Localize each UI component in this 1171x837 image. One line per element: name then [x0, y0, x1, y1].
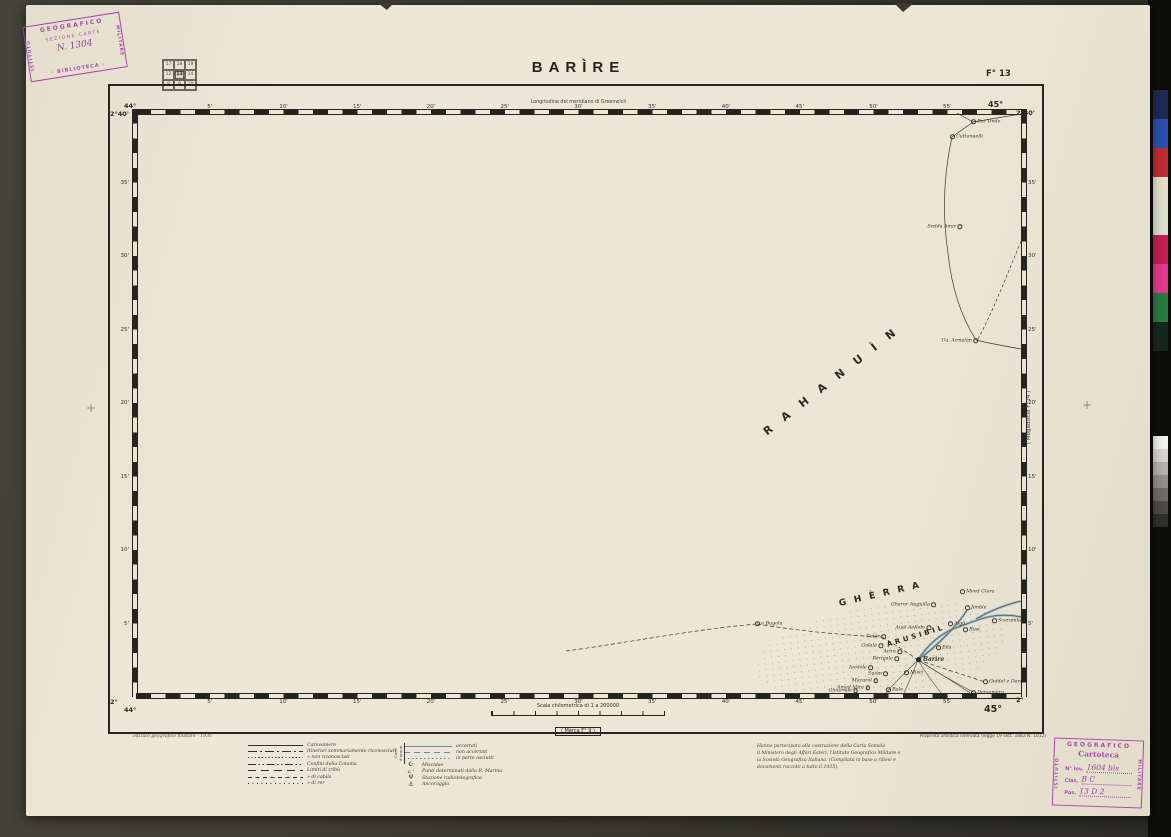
- stamp-field-label: N° inv.: [1065, 766, 1084, 773]
- stamp-text: · BIBLIOTECA ·: [31, 58, 127, 79]
- credits-line: Hanno partecipato alla costruzione della…: [757, 743, 977, 750]
- top-tick-labels: 5'10'15'20'25'30'35'40'45'50'55': [136, 104, 1021, 111]
- water-dotted-line-sample: [404, 758, 452, 759]
- place-marker: [883, 671, 888, 676]
- credits-block: Hanno partecipato alla costruzione della…: [757, 743, 977, 771]
- calibration-gray-patch: [1153, 475, 1168, 488]
- map-place: Dersamèra: [971, 690, 1004, 693]
- legend-label: non accertati: [456, 750, 487, 755]
- edition-note: Istituto geografico militare - 1936: [133, 734, 212, 739]
- place-marker: [973, 338, 978, 343]
- map-place: Cuttanaelli: [950, 134, 983, 139]
- place-marker: [971, 690, 976, 693]
- legend-row: » di rer: [248, 780, 396, 786]
- map-place: Ua. Armalàn: [941, 338, 978, 343]
- lat-tick-label: 25': [104, 327, 129, 333]
- lon-tick-label: 55': [943, 104, 952, 110]
- water-group-label: Corsi d'acqua: [393, 743, 405, 764]
- place-label: Suiàn: [868, 671, 882, 676]
- stamp-handwritten-value: 1604 bis: [1086, 764, 1132, 775]
- index-grid-cell: 12: [163, 70, 174, 80]
- color-calibration-strip: [1153, 90, 1168, 351]
- place-marker: [971, 119, 976, 124]
- place-marker: [992, 618, 997, 623]
- cartoteca-stamp: GEOGRAFICO ISTITUTO MILITARE Cartoteca N…: [1052, 737, 1144, 808]
- place-label: Bale: [892, 687, 903, 692]
- map-place: Sedda Amìr: [927, 224, 962, 229]
- lat-tick-label: 35': [1026, 180, 1037, 186]
- calibration-color-patch: [1153, 148, 1168, 177]
- cartoteca-row: Clas.B C: [1065, 772, 1132, 786]
- adjacent-sheet-label-bottom: ( Mèrca F° 9 ): [555, 727, 601, 736]
- lon-tick-label: 5': [207, 699, 212, 705]
- place-label: Dersamèra: [977, 690, 1004, 693]
- legend-label: Miscidas: [422, 763, 443, 768]
- map-place: Eila: [936, 645, 952, 650]
- water-dashed-line-sample: [404, 752, 452, 753]
- legend-label: Carovaniere: [307, 743, 336, 748]
- index-grid-cell: 13: [174, 70, 185, 80]
- legend-label: Stazione radiotelegrafica: [422, 776, 482, 781]
- credits-line: documenti raccolti a tutto il 1935).: [757, 764, 977, 771]
- calibration-gray-patch: [1153, 436, 1168, 449]
- corner-longitude-label: 44°: [124, 102, 136, 110]
- sheet-number: F° 13: [986, 69, 1011, 79]
- place-label: Rerìgale: [872, 656, 893, 661]
- map-place: Bale: [886, 687, 903, 692]
- lon-tick-label: 25': [500, 104, 509, 110]
- credits-line: la Società Geografica Italiana. (Compila…: [757, 757, 977, 764]
- cartoteca-row: N° inv.1604 bis: [1065, 760, 1132, 774]
- map-place: Catâr: [866, 634, 886, 639]
- legend-label: Limiti di tribù: [307, 768, 340, 773]
- uncertain-track: [978, 241, 1021, 339]
- legend-label: Confini della Colonia: [307, 762, 357, 767]
- solid-line-sample: [248, 745, 303, 746]
- map-place: Ghiurrale: [829, 688, 858, 693]
- map-place: Suiàn: [868, 671, 888, 676]
- index-grid-cell: 19: [185, 60, 196, 70]
- map-place: Giddel e Daradorle: [983, 679, 1021, 684]
- place-label: Gherer Auguilla: [891, 602, 930, 607]
- place-marker: [873, 678, 878, 683]
- map-place: Iacdòle: [849, 665, 873, 670]
- lat-tick-label: 25': [1026, 327, 1037, 333]
- map-place: Macaròl: [852, 678, 878, 683]
- calibration-color-patch: [1153, 119, 1168, 148]
- legend-water-group: Corsi d'acqua accertatinon accertatiin p…: [404, 743, 502, 788]
- corner-longitude-label: 45°: [988, 100, 1003, 109]
- place-marker: [983, 679, 988, 684]
- place-marker: [950, 134, 955, 139]
- place-label: Miscì: [910, 670, 923, 675]
- lon-tick-label: 50': [869, 699, 878, 705]
- dotted-line-sample: [248, 757, 303, 758]
- place-label: Macaròl: [852, 678, 872, 683]
- calibration-gray-patch: [1153, 501, 1168, 514]
- place-marker: [948, 621, 953, 626]
- lon-tick-label: 45': [795, 104, 804, 110]
- legend-label: accertati: [456, 744, 477, 749]
- registration-cross: +: [1082, 398, 1092, 412]
- place-marker: [886, 687, 891, 692]
- map-place: Bur Onde: [971, 119, 1000, 124]
- lon-tick-label: 15': [353, 104, 362, 110]
- place-label: Bur Onde: [977, 119, 1000, 124]
- map-place: Rùsi: [963, 627, 980, 632]
- corner-longitude-label: 45°: [984, 704, 1002, 715]
- dashdot-line-sample: [248, 751, 303, 752]
- place-marker: [916, 657, 921, 662]
- lon-tick-label: 35': [648, 104, 657, 110]
- place-label: Aigò: [954, 621, 965, 626]
- calibration-gray-patch: [1153, 462, 1168, 475]
- lat-tick-label: 10': [104, 547, 129, 553]
- paper-tear: [894, 3, 914, 12]
- map-place: Barìre: [916, 656, 944, 663]
- place-marker: [878, 643, 883, 648]
- scale-bar: [491, 711, 665, 716]
- map-place: Galalà: [861, 643, 883, 648]
- stamp-field-label: Pos.: [1064, 790, 1076, 796]
- index-grid-row: 171819: [163, 60, 196, 70]
- legend-routes: CarovaniereItinerari sommariamente ricon…: [248, 742, 396, 787]
- map-title: BARÌRE: [386, 59, 771, 76]
- caravan-track: [945, 113, 1021, 349]
- map-place: Arirà: [883, 649, 902, 654]
- stamp-field-label: Clas.: [1065, 778, 1079, 784]
- map-place: Jimble: [965, 605, 987, 610]
- lat-tick-label: 10': [1026, 547, 1037, 553]
- corner-latitude-label: 2°: [110, 698, 118, 706]
- library-stamp: GEOGRAFICO ISTITUTO MILITARE SEZIONE CAR…: [22, 12, 128, 83]
- dashdotdot-line-sample: [248, 764, 303, 765]
- place-marker: [965, 605, 970, 610]
- lat-tick-label: 5': [104, 621, 129, 627]
- lon-tick-label: 20': [427, 699, 436, 705]
- lon-tick-label: 5': [207, 104, 212, 110]
- place-label: Catâr: [866, 634, 880, 639]
- calibration-gray-patch: [1153, 449, 1168, 462]
- place-label: Eila: [942, 645, 951, 650]
- lat-tick-label: 5': [1026, 621, 1033, 627]
- cartoteca-rows: N° inv.1604 bisClas.B CPos.13 D 2: [1064, 760, 1132, 798]
- place-marker: [897, 649, 902, 654]
- lon-tick-label: 20': [427, 104, 436, 110]
- corner-latitude-label: 2°40': [110, 110, 129, 118]
- stamp-handwritten-value: 13 D 2: [1079, 787, 1131, 798]
- map-place: Meed Clora: [960, 589, 995, 594]
- lon-tick-label: 10': [279, 104, 288, 110]
- legend-label: Itinerari sommariamente riconosciuti: [307, 749, 396, 754]
- map-place: Rerìgale: [872, 656, 899, 661]
- place-marker: [881, 634, 886, 639]
- legend-water-rows: accertatinon accertatiin parte asciutti: [404, 743, 502, 762]
- stamp-text: Cartoteca: [1055, 748, 1143, 760]
- place-marker: [936, 645, 941, 650]
- adjacent-sheet-label-right: ( Mogadiscio F°14 ): [1026, 355, 1032, 479]
- legend-label: » di rer: [307, 781, 325, 786]
- lon-tick-label: 40': [722, 104, 731, 110]
- calibration-color-patch: [1153, 293, 1168, 322]
- place-label: Sedda Amìr: [927, 224, 956, 229]
- calibration-color-patch: [1153, 90, 1168, 119]
- place-label: Arirà: [883, 649, 895, 654]
- legend-symbol-rows: ☪Miscidas▵ ·Punti determinati dalla R. M…: [404, 762, 502, 788]
- lon-tick-label: 50': [869, 104, 878, 110]
- stamp-handwritten-value: B C: [1081, 775, 1132, 786]
- legend-label: in parte asciutti: [456, 756, 494, 761]
- index-grid-cell: 14: [185, 70, 196, 80]
- place-marker: [931, 602, 936, 607]
- paper-tear: [378, 3, 394, 10]
- corner-latitude-label: 2°: [1016, 696, 1024, 704]
- calibration-color-patch: [1153, 206, 1168, 235]
- index-grid-cell: 17: [163, 60, 174, 70]
- calibration-gray-patch: [1153, 514, 1168, 527]
- legend-symbol-icon: ⚓: [404, 782, 418, 788]
- copyright-note: Proprietà artistica riservata (legge 19 …: [746, 734, 1046, 739]
- legend-symbol-row: ⚓Ancoraggio: [404, 781, 502, 787]
- lon-tick-label: 40': [722, 699, 731, 705]
- map-place: e Bugola: [755, 621, 782, 626]
- calibration-color-patch: [1153, 235, 1168, 264]
- place-label: Ua. Armalàn: [941, 338, 972, 343]
- lat-tick-label: 30': [1026, 253, 1037, 259]
- lon-tick-label: 45': [795, 699, 804, 705]
- calibration-color-patch: [1153, 264, 1168, 293]
- place-label: Rùsi: [969, 627, 980, 632]
- legend-label: Punti determinati dalla R. Marina: [422, 769, 502, 774]
- place-marker: [960, 589, 965, 594]
- map-place: Aigò: [948, 621, 965, 626]
- calibration-gray-patch: [1153, 488, 1168, 501]
- lat-tick-label: 15': [104, 474, 129, 480]
- map-place: Sceramba Camar: [992, 618, 1021, 623]
- place-marker: [868, 665, 873, 670]
- map-place: Gherer Auguilla: [891, 602, 936, 607]
- map-paper: GEOGRAFICO ISTITUTO MILITARE SEZIONE CAR…: [26, 5, 1150, 816]
- place-label: Iacdòle: [849, 665, 867, 670]
- lat-tick-label: 35': [104, 180, 129, 186]
- calibration-color-patch: [1153, 322, 1168, 351]
- finedot-line-sample: [248, 783, 303, 784]
- place-label: Galalà: [861, 643, 876, 648]
- place-label: Barìre: [923, 656, 944, 663]
- place-label: Giddel e Daradorle: [989, 679, 1021, 684]
- place-label: e Bugola: [761, 621, 782, 626]
- map-content-area: Bur OndeCuttanaelliSedda AmìrUa. Armalàn…: [136, 113, 1021, 693]
- lon-tick-label: 10': [279, 699, 288, 705]
- scale-block: Scala chilometrica di 1 a 200000 ( Mèrca…: [478, 703, 678, 736]
- left-tick-labels: 35'30'25'20'15'10'5': [104, 109, 129, 697]
- place-marker: [904, 670, 909, 675]
- lat-tick-label: 20': [104, 400, 129, 406]
- cartoteca-row: Pos.13 D 2: [1064, 784, 1131, 798]
- credits-line: il Ministero degli Affari Esteri, l'Isti…: [757, 750, 977, 757]
- place-label: Meed Clora: [966, 589, 994, 594]
- legend-label: » non riconosciuti: [307, 755, 350, 760]
- calibration-color-patch: [1153, 177, 1168, 206]
- legend-label: Ancoraggio: [422, 782, 449, 787]
- place-label: Sceramba Camar: [998, 618, 1021, 623]
- legend-label: » di cabila: [307, 775, 332, 780]
- corner-longitude-label: 44°: [124, 706, 136, 714]
- place-marker: [963, 627, 968, 632]
- place-label: Ghiurrale: [829, 688, 852, 693]
- place-marker: [865, 685, 870, 690]
- lon-tick-label: 30': [574, 104, 583, 110]
- lon-tick-label: 15': [353, 699, 362, 705]
- lon-tick-label: 55': [943, 699, 952, 705]
- map-place: Miscì: [904, 670, 923, 675]
- place-label: Jimble: [971, 605, 986, 610]
- place-marker: [755, 621, 760, 626]
- shortdash-line-sample: [248, 777, 303, 778]
- place-marker: [957, 224, 962, 229]
- longdash-line-sample: [248, 770, 303, 771]
- index-grid-cell: 18: [174, 60, 185, 70]
- place-marker: [894, 656, 899, 661]
- scale-title: Scala chilometrica di 1 a 200000: [478, 703, 678, 709]
- registration-cross: +: [86, 401, 96, 415]
- water-solid-line-sample: [404, 746, 452, 747]
- index-grid-row: 121314: [163, 70, 196, 80]
- place-label: Cuttanaelli: [956, 134, 983, 139]
- place-marker: [853, 688, 858, 693]
- lat-tick-label: 30': [104, 253, 129, 259]
- scanned-map-sheet: GEOGRAFICO ISTITUTO MILITARE SEZIONE CAR…: [0, 0, 1171, 837]
- grayscale-calibration-strip: [1153, 436, 1168, 527]
